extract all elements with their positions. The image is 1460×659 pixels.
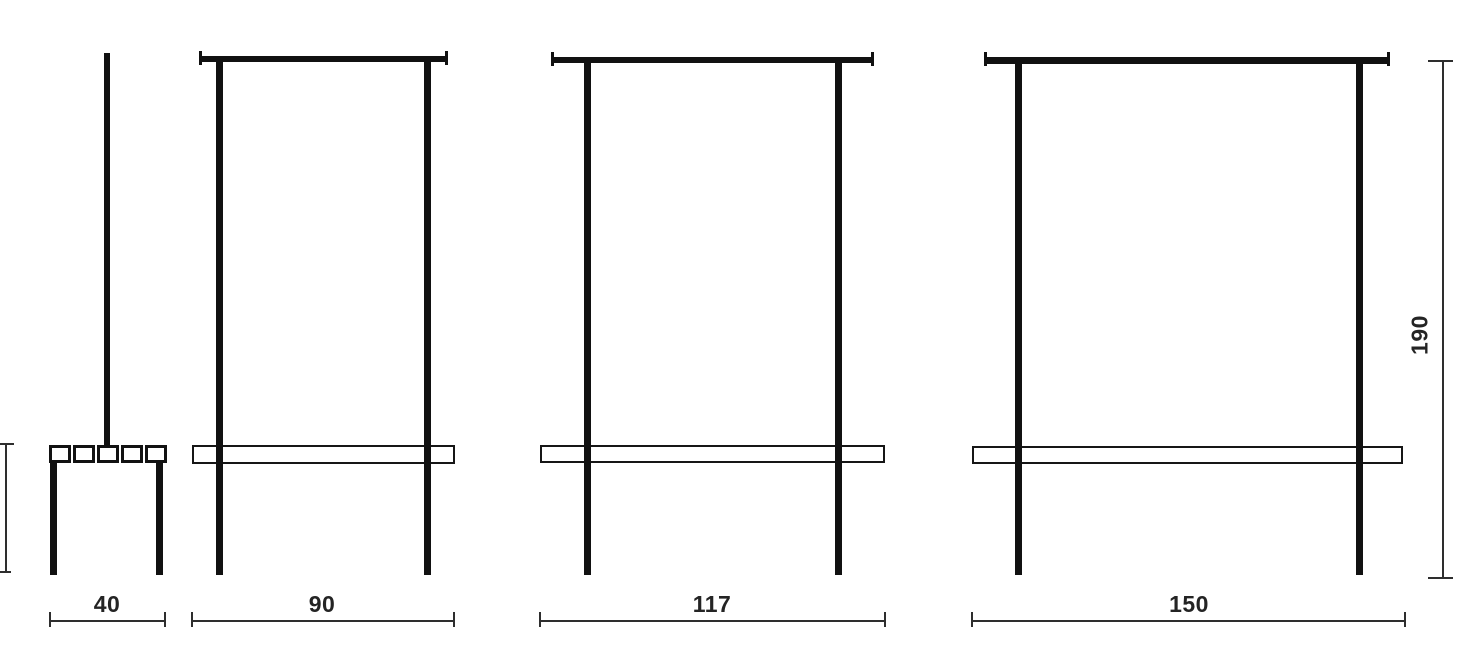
bench-leg-right <box>156 461 163 575</box>
dimension-tick <box>49 612 51 627</box>
rail-end-cap-left <box>199 51 202 65</box>
bench-seat <box>972 446 1403 464</box>
dimension-tick <box>884 612 886 627</box>
dimension-tick <box>191 612 193 627</box>
post-right <box>835 59 842 575</box>
dimension-line <box>5 444 7 573</box>
post-left <box>584 59 591 575</box>
post-left <box>1015 60 1022 575</box>
dimension-label: 40 <box>94 591 121 618</box>
seat-slat <box>97 445 119 463</box>
top-rail <box>200 56 447 62</box>
dimension-label: 190 <box>1407 315 1434 355</box>
top-rail <box>985 57 1390 64</box>
post-right <box>1356 60 1363 575</box>
rail-end-cap-right <box>1387 52 1390 66</box>
dimension-line <box>1442 61 1444 578</box>
rail-end-cap-right <box>445 51 448 65</box>
dimension-tick <box>0 571 11 573</box>
bench-seat <box>540 445 885 463</box>
dimension-tick <box>539 612 541 627</box>
rail-end-cap-left <box>551 52 554 66</box>
hanger-pole <box>104 53 110 447</box>
dimension-line <box>192 620 454 622</box>
rail-end-cap-left <box>984 52 987 66</box>
dimension-tick <box>1428 577 1453 579</box>
dimension-line <box>972 620 1406 622</box>
dimension-drawing: 40 90 117 <box>0 0 1460 659</box>
rail-end-cap-right <box>871 52 874 66</box>
dimension-tick <box>0 443 14 445</box>
bench-leg-left <box>50 461 57 575</box>
top-rail <box>552 57 873 63</box>
bench-seat-slats <box>49 445 167 463</box>
dimension-tick <box>1428 60 1453 62</box>
post-left <box>216 58 223 575</box>
dimension-label: 90 <box>309 591 336 618</box>
dimension-line <box>540 620 886 622</box>
dimension-label: 117 <box>693 591 732 618</box>
seat-slat <box>73 445 95 463</box>
dimension-tick <box>1404 612 1406 627</box>
dimension-tick <box>453 612 455 627</box>
post-right <box>424 58 431 575</box>
dimension-tick <box>164 612 166 627</box>
dimension-line <box>50 620 165 622</box>
dimension-tick <box>971 612 973 627</box>
bench-seat <box>192 445 455 464</box>
seat-slat <box>121 445 143 463</box>
dimension-label: 150 <box>1169 591 1209 618</box>
